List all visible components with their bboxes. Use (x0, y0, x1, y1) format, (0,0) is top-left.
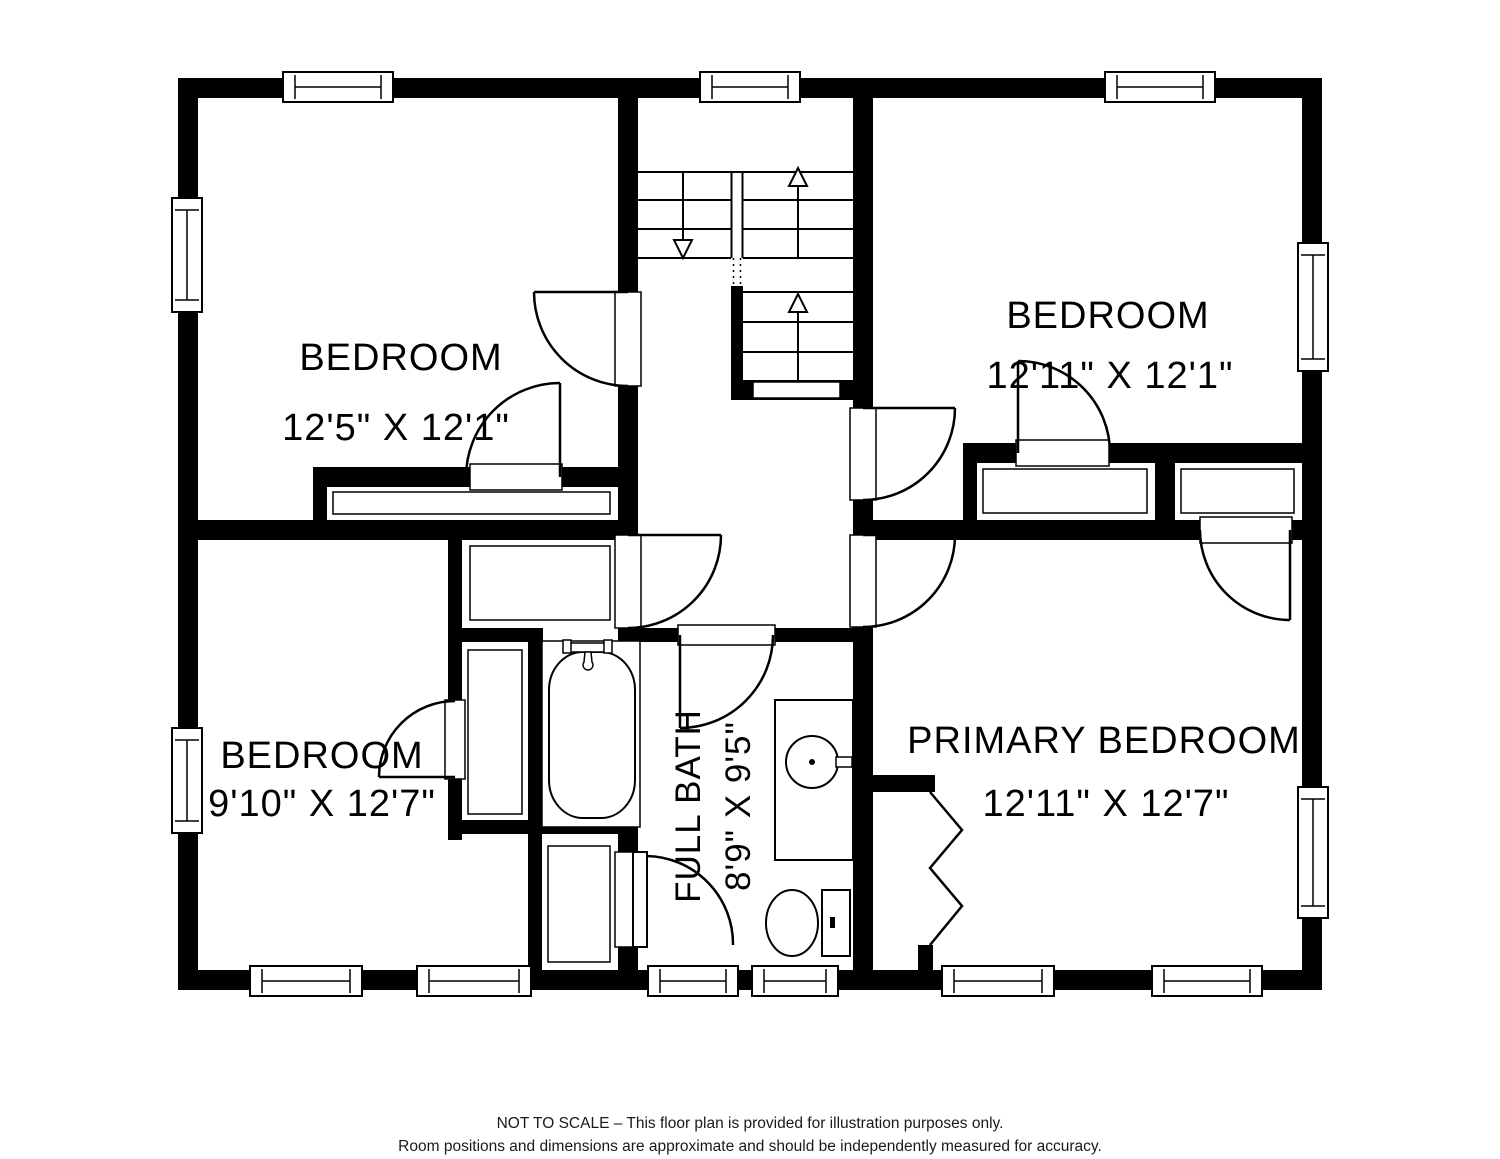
door-tl-bedroom (534, 292, 628, 386)
stair-lower-up-arrow-icon (789, 294, 807, 382)
door-linen-closet (628, 535, 721, 628)
label-full-bath: FULL BATH 8'9" X 9'5" (664, 709, 764, 903)
label-bedroom-tl-dims: 12'5" X 12'1" (282, 409, 510, 447)
stair-down-arrow-icon (674, 172, 692, 258)
label-full-bath-name: FULL BATH (664, 709, 714, 903)
label-bedroom-tr-name: BEDROOM (1006, 297, 1209, 335)
door-tr-bedroom (863, 408, 955, 500)
label-bedroom-tl-name: BEDROOM (299, 339, 502, 377)
staircase (638, 168, 853, 382)
stair-up-arrow-icon (789, 168, 807, 258)
vanity-sink-icon (775, 700, 853, 860)
disclaimer-line-1: NOT TO SCALE – This floor plan is provid… (497, 1115, 1004, 1133)
label-bedroom-bl-dims: 9'10" X 12'7" (208, 785, 436, 823)
floor-plan-page: BEDROOM 12'5" X 12'1" BEDROOM 12'11" X 1… (0, 0, 1500, 1159)
bifold-closet-doors (930, 792, 962, 945)
stair-rail-dotted (734, 258, 741, 286)
bathtub-icon (542, 640, 640, 827)
label-bedroom-bl-name: BEDROOM (220, 737, 423, 775)
floor-plan-drawing (0, 0, 1500, 1159)
disclaimer-line-2: Room positions and dimensions are approx… (398, 1138, 1102, 1156)
label-primary-bedroom-dims: 12'11" X 12'7" (982, 785, 1229, 823)
label-primary-bedroom-name: PRIMARY BEDROOM (907, 722, 1301, 760)
label-bedroom-tr-dims: 12'11" X 12'1" (986, 357, 1233, 395)
label-full-bath-dims: 8'9" X 9'5" (714, 709, 764, 903)
stair-treads (638, 172, 853, 352)
toilet-icon (766, 890, 850, 956)
door-primary-bedroom (863, 535, 955, 627)
